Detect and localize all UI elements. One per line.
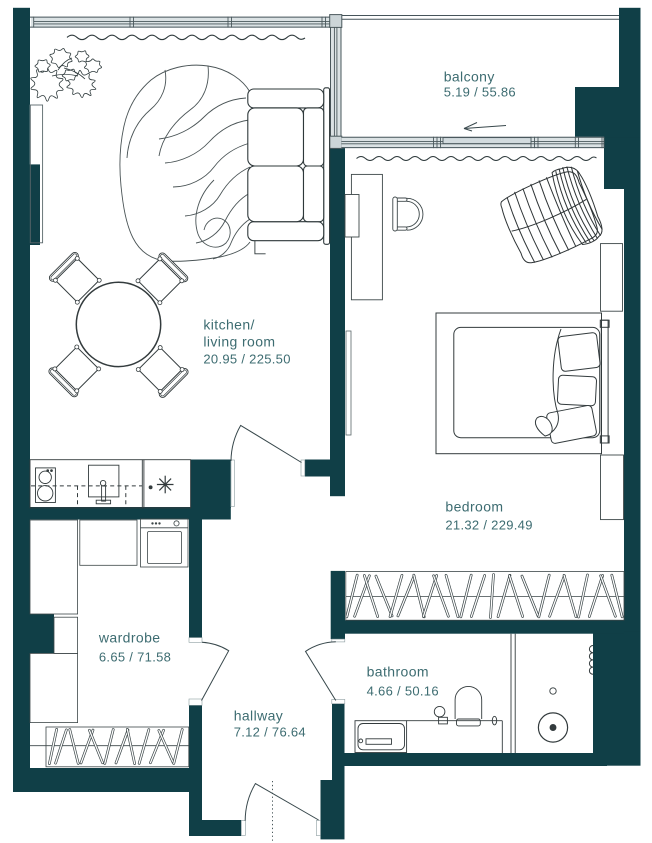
svg-text:7.12 / 76.64: 7.12 / 76.64 [234, 725, 306, 740]
svg-text:4.66 / 50.16: 4.66 / 50.16 [367, 684, 439, 699]
svg-text:hallway: hallway [234, 708, 284, 724]
svg-text:living room: living room [203, 334, 275, 350]
svg-text:20.95 / 225.50: 20.95 / 225.50 [203, 352, 290, 367]
svg-text:kitchen/: kitchen/ [203, 317, 254, 333]
svg-text:6.65 / 71.58: 6.65 / 71.58 [99, 650, 171, 665]
svg-text:balcony: balcony [444, 69, 495, 85]
svg-text:5.19 / 55.86: 5.19 / 55.86 [444, 85, 516, 100]
svg-text:bathroom: bathroom [367, 664, 429, 680]
svg-text:21.32 / 229.49: 21.32 / 229.49 [445, 518, 532, 533]
svg-text:bedroom: bedroom [445, 499, 503, 515]
svg-text:wardrobe: wardrobe [98, 630, 161, 646]
